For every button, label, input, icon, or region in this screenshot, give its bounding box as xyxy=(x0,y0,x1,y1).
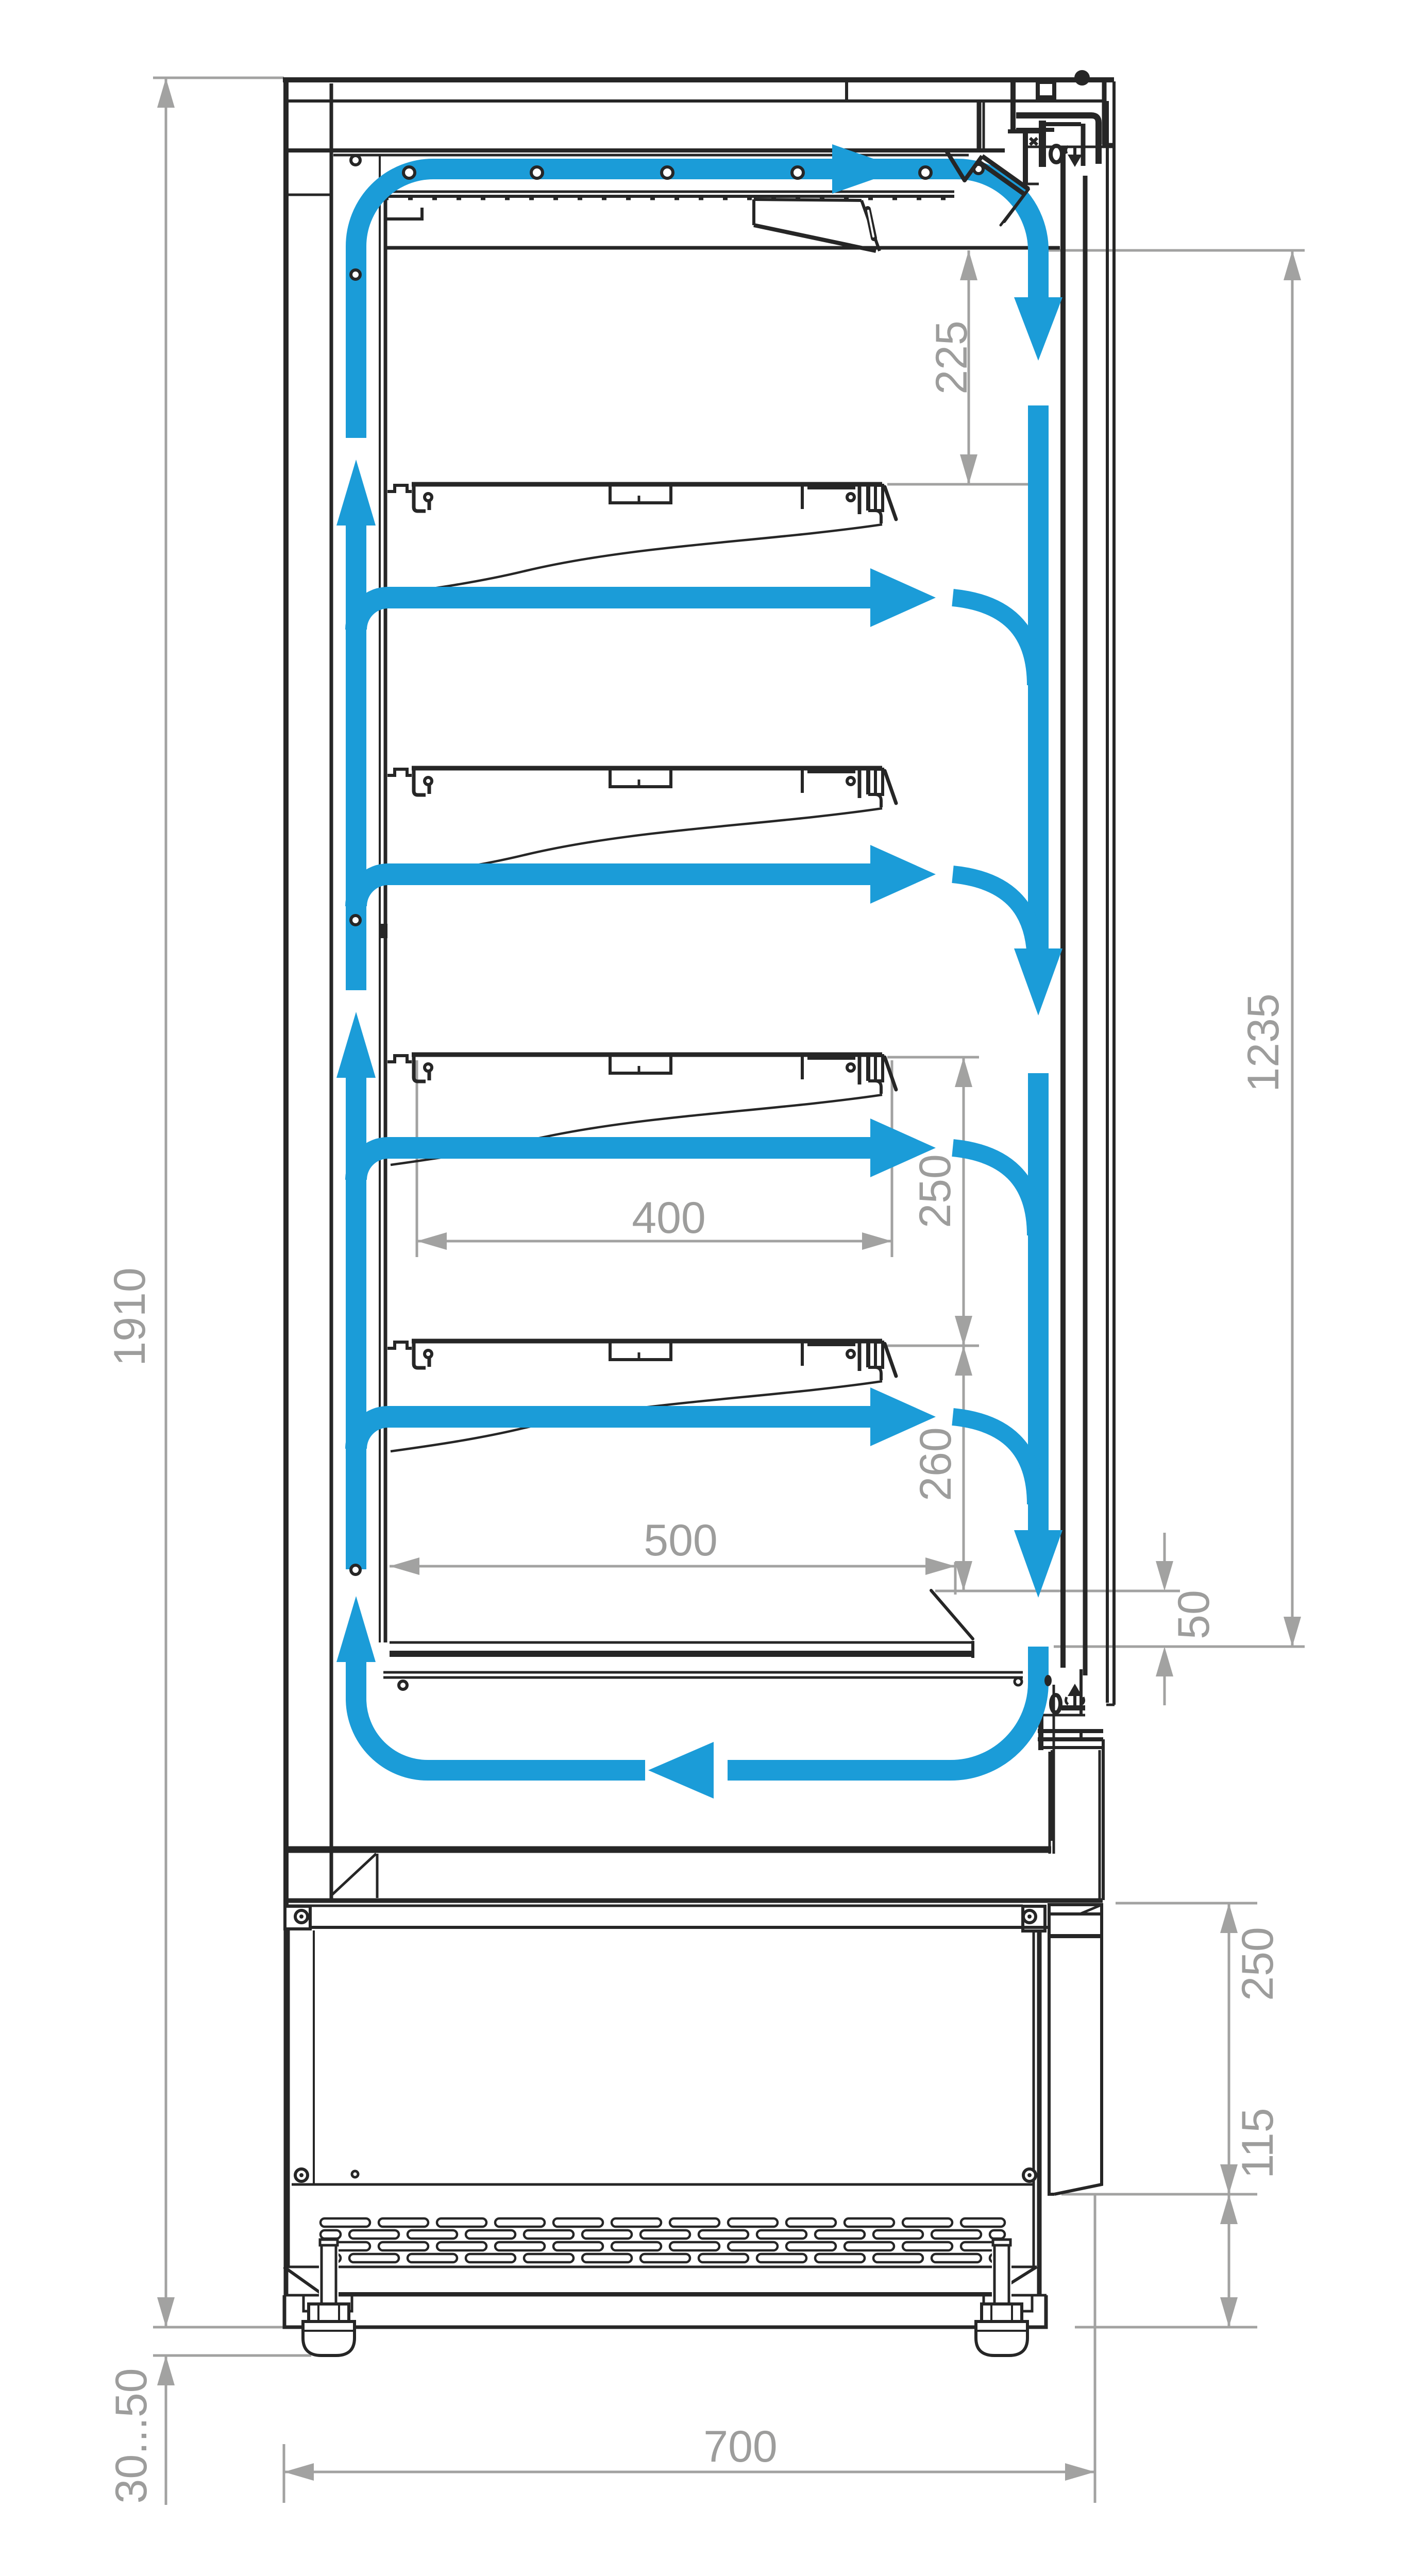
svg-text:115: 115 xyxy=(1233,2108,1283,2178)
svg-text:700: 700 xyxy=(703,2422,778,2471)
svg-text:1910: 1910 xyxy=(105,1267,155,1366)
svg-text:400: 400 xyxy=(632,1193,706,1243)
svg-text:250: 250 xyxy=(910,1154,960,1228)
svg-text:225: 225 xyxy=(927,320,976,395)
svg-text:260: 260 xyxy=(911,1427,960,1501)
svg-text:250: 250 xyxy=(1233,1927,1283,2001)
svg-text:30...50: 30...50 xyxy=(107,2368,156,2504)
svg-text:1235: 1235 xyxy=(1239,993,1288,1092)
svg-text:50: 50 xyxy=(1169,1590,1219,1639)
svg-text:500: 500 xyxy=(644,1516,718,1565)
